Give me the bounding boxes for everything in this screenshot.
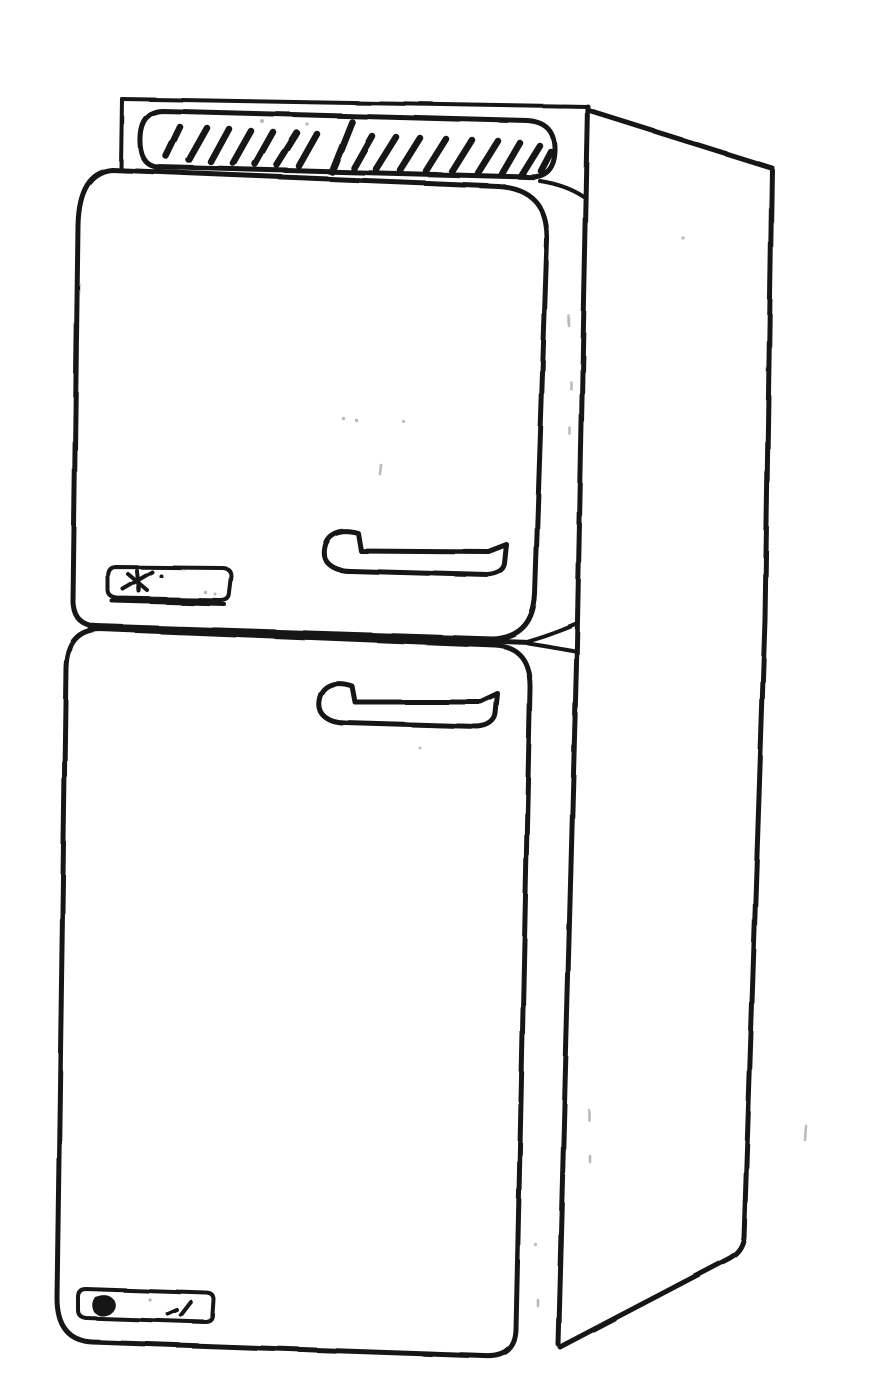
refrigerator-line-drawing	[0, 0, 892, 1387]
fridge-door	[57, 629, 530, 1356]
top-hatched-panel	[140, 111, 555, 177]
cabinet-side-panel	[540, 107, 772, 1347]
refrigerator-illustration	[0, 0, 892, 1387]
